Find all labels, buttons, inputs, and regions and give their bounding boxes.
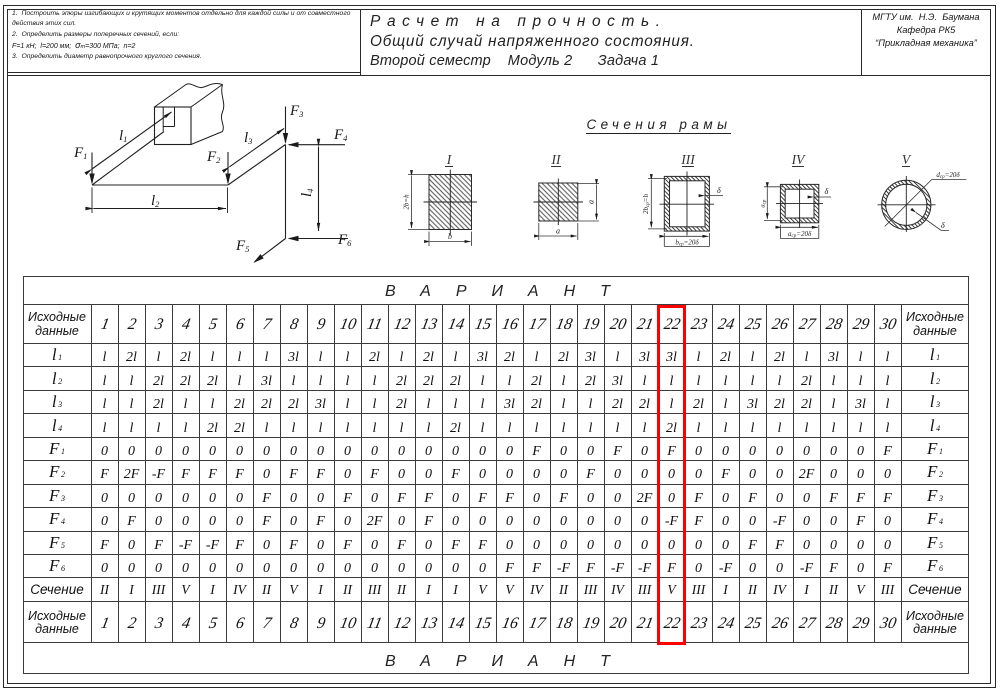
svg-text:l4: l4 bbox=[299, 188, 315, 197]
svg-text:F2: F2 bbox=[206, 149, 221, 165]
svg-text:I: I bbox=[446, 152, 453, 167]
svg-text:F5: F5 bbox=[235, 238, 249, 254]
svg-text:b: b bbox=[448, 232, 452, 241]
svg-text:Сечения рамы: Сечения рамы bbox=[586, 117, 731, 132]
svg-text:a: a bbox=[587, 200, 596, 204]
svg-text:l2: l2 bbox=[151, 193, 160, 209]
svg-text:2b=h: 2b=h bbox=[403, 194, 411, 210]
svg-text:l3: l3 bbox=[244, 130, 252, 146]
svg-text:a: a bbox=[556, 227, 560, 236]
svg-text:aср: aср bbox=[760, 199, 768, 207]
svg-text:F4: F4 bbox=[333, 127, 348, 143]
svg-text:δ: δ bbox=[825, 187, 829, 196]
svg-text:bср=20δ: bср=20δ bbox=[675, 238, 699, 247]
svg-text:III: III bbox=[680, 152, 696, 167]
svg-text:F1: F1 bbox=[73, 145, 87, 161]
svg-text:dср=20δ: dср=20δ bbox=[936, 171, 960, 180]
svg-text:aср=20δ: aср=20δ bbox=[788, 230, 812, 239]
svg-text:F3: F3 bbox=[289, 103, 303, 119]
svg-text:II: II bbox=[551, 152, 562, 167]
svg-text:l1: l1 bbox=[119, 128, 127, 144]
svg-text:F6: F6 bbox=[337, 232, 352, 248]
svg-text:V: V bbox=[902, 152, 912, 167]
svg-text:δ: δ bbox=[941, 221, 945, 230]
svg-text:2bср=h: 2bср=h bbox=[642, 194, 651, 214]
svg-text:δ: δ bbox=[717, 186, 721, 195]
svg-text:IV: IV bbox=[791, 152, 806, 167]
